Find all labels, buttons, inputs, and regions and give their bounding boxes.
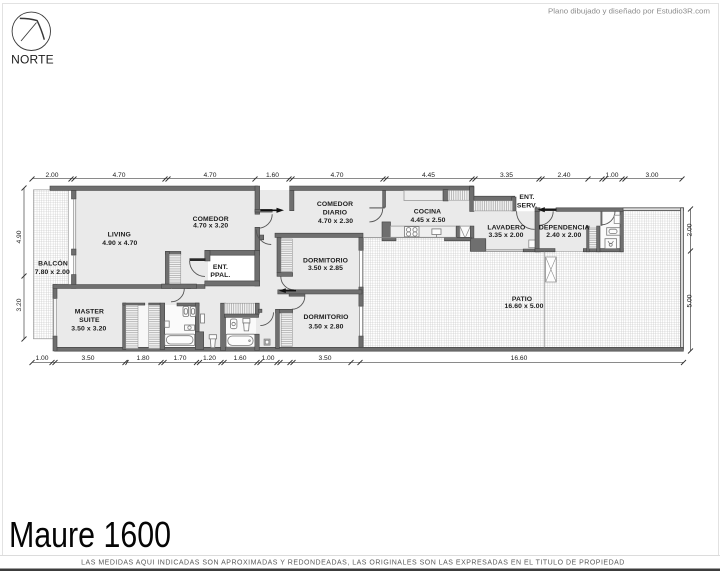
svg-text:DORMITORIO: DORMITORIO xyxy=(303,314,348,321)
svg-text:PPAL.: PPAL. xyxy=(210,272,230,279)
svg-text:5.00: 5.00 xyxy=(687,294,694,307)
svg-text:4.70 x 3.20: 4.70 x 3.20 xyxy=(193,223,228,230)
svg-text:3.00: 3.00 xyxy=(645,172,658,179)
svg-text:PATIO: PATIO xyxy=(512,296,532,303)
svg-text:7.80 x 2.00: 7.80 x 2.00 xyxy=(35,269,70,276)
svg-text:4.70: 4.70 xyxy=(330,172,343,179)
svg-text:2.40: 2.40 xyxy=(557,172,570,179)
svg-text:4.70: 4.70 xyxy=(203,172,216,179)
svg-text:1.00: 1.00 xyxy=(605,172,618,179)
svg-text:1.80: 1.80 xyxy=(136,355,149,362)
svg-text:4.70 x 2.30: 4.70 x 2.30 xyxy=(318,218,353,225)
svg-text:1.00: 1.00 xyxy=(35,355,48,362)
svg-text:COCINA: COCINA xyxy=(414,209,441,216)
svg-text:3.35 x 2.00: 3.35 x 2.00 xyxy=(488,232,523,239)
svg-text:Maure 1600: Maure 1600 xyxy=(9,514,171,555)
svg-text:SUITE: SUITE xyxy=(79,317,100,324)
svg-text:2.00: 2.00 xyxy=(687,223,694,236)
svg-text:Plano dibujado y diseñado por: Plano dibujado y diseñado por Estudio3R.… xyxy=(548,7,710,16)
svg-text:ENT.: ENT. xyxy=(519,194,534,201)
svg-text:16.60: 16.60 xyxy=(511,355,528,362)
svg-text:LAS MEDIDAS AQUI INDICADAS SON: LAS MEDIDAS AQUI INDICADAS SON APROXIMAD… xyxy=(81,560,625,567)
svg-text:2.40 x 2.00: 2.40 x 2.00 xyxy=(546,232,581,239)
svg-text:4.45 x 2.50: 4.45 x 2.50 xyxy=(410,217,445,224)
svg-text:1.70: 1.70 xyxy=(173,355,186,362)
svg-text:BALCÓN: BALCÓN xyxy=(38,258,68,267)
svg-text:DORMITORIO: DORMITORIO xyxy=(303,257,348,264)
svg-text:COMEDOR: COMEDOR xyxy=(317,201,353,208)
svg-text:3.50: 3.50 xyxy=(318,355,331,362)
svg-text:1.60: 1.60 xyxy=(233,355,246,362)
svg-text:ENT.: ENT. xyxy=(213,264,228,271)
svg-text:DIARIO: DIARIO xyxy=(323,210,347,217)
svg-text:4.90: 4.90 xyxy=(16,230,23,243)
svg-text:3.50 x 2.80: 3.50 x 2.80 xyxy=(308,324,343,331)
svg-text:LAVADERO: LAVADERO xyxy=(487,225,525,232)
svg-text:3.50 x 3.20: 3.50 x 3.20 xyxy=(71,325,106,332)
svg-text:3.20: 3.20 xyxy=(16,298,23,311)
svg-text:3.35: 3.35 xyxy=(500,172,513,179)
svg-text:4.70: 4.70 xyxy=(112,172,125,179)
svg-text:2.00: 2.00 xyxy=(45,172,58,179)
svg-text:SERV.: SERV. xyxy=(517,202,537,209)
svg-text:DEPENDENCIA: DEPENDENCIA xyxy=(539,224,590,231)
svg-text:1.20: 1.20 xyxy=(203,355,216,362)
svg-text:NORTE: NORTE xyxy=(11,53,54,67)
svg-text:3.50: 3.50 xyxy=(81,355,94,362)
svg-text:4.45: 4.45 xyxy=(422,172,435,179)
svg-text:LIVING: LIVING xyxy=(108,231,131,238)
svg-text:1.00: 1.00 xyxy=(261,355,274,362)
svg-text:MASTER: MASTER xyxy=(75,308,104,315)
svg-text:16.60 x 5.00: 16.60 x 5.00 xyxy=(505,303,544,310)
svg-text:4.90 x 4.70: 4.90 x 4.70 xyxy=(102,240,137,247)
svg-text:1.60: 1.60 xyxy=(266,172,279,179)
svg-text:3.50 x 2.85: 3.50 x 2.85 xyxy=(308,265,343,272)
